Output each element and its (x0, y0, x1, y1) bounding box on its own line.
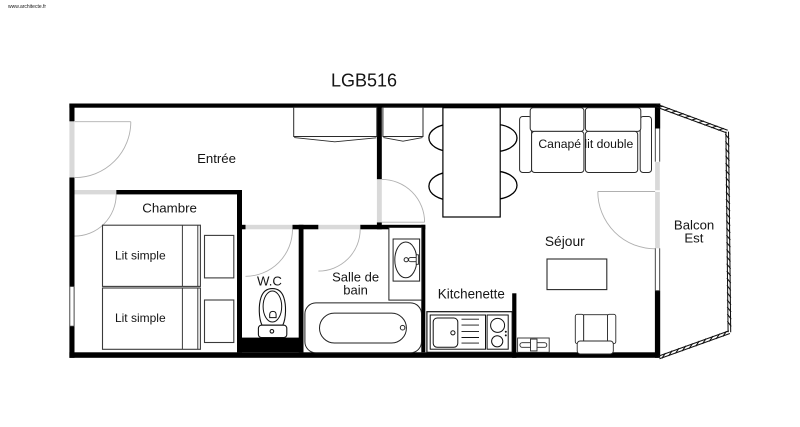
svg-text:bain: bain (343, 283, 368, 298)
svg-text:Lit simple: Lit simple (115, 248, 166, 262)
svg-text:Lit simple: Lit simple (115, 311, 166, 325)
svg-text:Entrée: Entrée (197, 151, 236, 166)
svg-text:W.C: W.C (257, 274, 282, 289)
svg-text:Kitchenette: Kitchenette (438, 287, 505, 302)
svg-text:Canapé lit double: Canapé lit double (538, 137, 633, 151)
svg-text:Séjour: Séjour (545, 234, 585, 249)
svg-text:LGB516: LGB516 (331, 71, 397, 91)
svg-text:Chambre: Chambre (142, 200, 197, 215)
svg-text:www.architecte.fr: www.architecte.fr (8, 4, 46, 10)
svg-text:Est: Est (684, 231, 703, 246)
